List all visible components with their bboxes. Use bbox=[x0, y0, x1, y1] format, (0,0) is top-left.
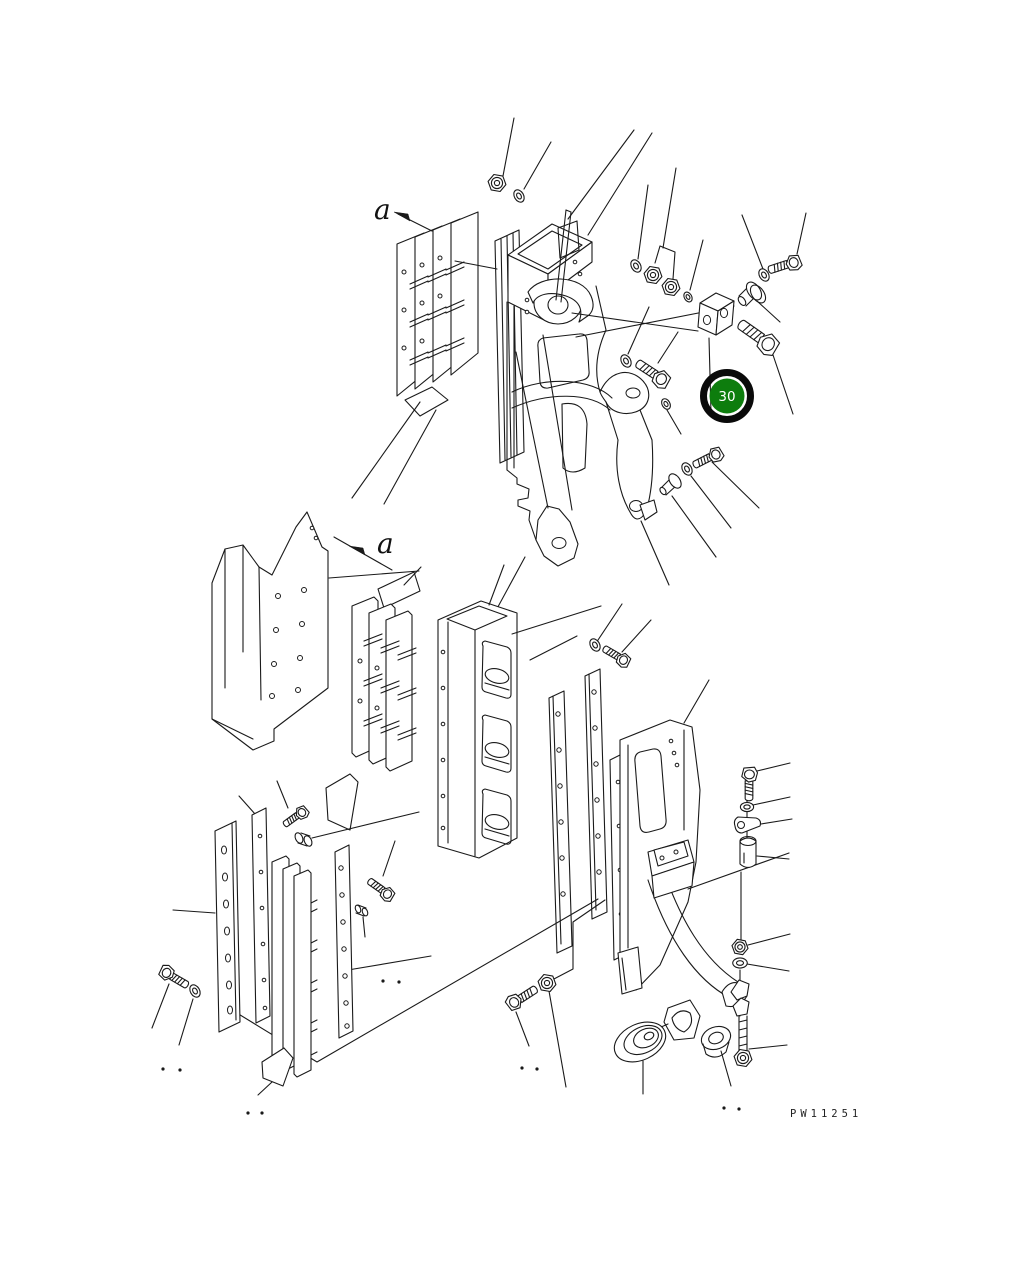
flat-washer bbox=[733, 958, 748, 968]
hex-nut bbox=[644, 267, 662, 284]
hex-bolt bbox=[733, 315, 782, 358]
view-arrow-head bbox=[394, 212, 410, 221]
clevis-block bbox=[698, 293, 734, 335]
diagram-page: a 30 bbox=[0, 0, 1009, 1267]
hex-nut bbox=[662, 279, 680, 296]
view-letter: a bbox=[374, 193, 391, 226]
side-strip-left bbox=[215, 821, 240, 1032]
parts-diagram: a 30 bbox=[0, 0, 1009, 1267]
main-frame-lower bbox=[610, 720, 747, 1040]
flat-washer bbox=[619, 353, 634, 369]
flat-washer bbox=[660, 397, 672, 411]
view-letter: a bbox=[377, 527, 394, 560]
view-label-a-lower: a bbox=[334, 527, 394, 570]
shim-plate-stack-middle bbox=[326, 572, 420, 830]
stack-flap-bottom bbox=[262, 1048, 293, 1086]
hex-bolt bbox=[364, 875, 396, 903]
hex-bolt bbox=[690, 445, 725, 473]
spacer bbox=[294, 832, 314, 848]
side-strip-right bbox=[335, 845, 353, 1038]
hex-bolt bbox=[766, 253, 803, 278]
lower-assembly: a bbox=[152, 512, 792, 1115]
hex-nut bbox=[538, 975, 556, 992]
flat-washer bbox=[680, 461, 695, 477]
flat-washer bbox=[629, 258, 644, 274]
hex-bolt bbox=[504, 981, 541, 1012]
shim-plate-stack-bottom bbox=[262, 856, 317, 1086]
stack-flap bbox=[326, 774, 358, 830]
side-strip-thin bbox=[252, 808, 270, 1023]
view-arrow-head bbox=[349, 546, 365, 555]
stud-with-nut bbox=[734, 1016, 752, 1067]
link-plate bbox=[734, 817, 760, 833]
small-pin bbox=[354, 904, 369, 916]
view-label-a-upper: a bbox=[374, 193, 432, 231]
drawing-number: PW11251 bbox=[790, 1108, 862, 1120]
flat-washer bbox=[682, 291, 694, 304]
stack-notches bbox=[311, 900, 317, 1055]
flanged-pin-small bbox=[659, 472, 684, 496]
slotted-plate-stack-upper bbox=[397, 212, 478, 416]
channel-frame bbox=[438, 601, 517, 858]
flat-washer bbox=[188, 983, 203, 999]
upper-assembly: a 30 bbox=[352, 118, 806, 662]
callout-number: 30 bbox=[718, 389, 735, 405]
hex-bolt bbox=[281, 804, 311, 831]
plug-bushing bbox=[698, 1023, 734, 1058]
flat-washer bbox=[588, 637, 603, 653]
hex-bolt bbox=[742, 767, 758, 801]
bushing bbox=[740, 837, 756, 868]
grommet bbox=[608, 1014, 672, 1069]
callout-30-badge[interactable]: 30 bbox=[704, 373, 751, 420]
flat-washer bbox=[740, 802, 753, 811]
stack-bottom-flap bbox=[405, 387, 448, 416]
hex-nut bbox=[732, 939, 748, 954]
flat-washer bbox=[512, 188, 527, 204]
corner-plate bbox=[212, 512, 328, 750]
flanged-pin bbox=[737, 279, 769, 306]
hex-bolt bbox=[157, 963, 192, 992]
hex-nut bbox=[488, 175, 506, 192]
